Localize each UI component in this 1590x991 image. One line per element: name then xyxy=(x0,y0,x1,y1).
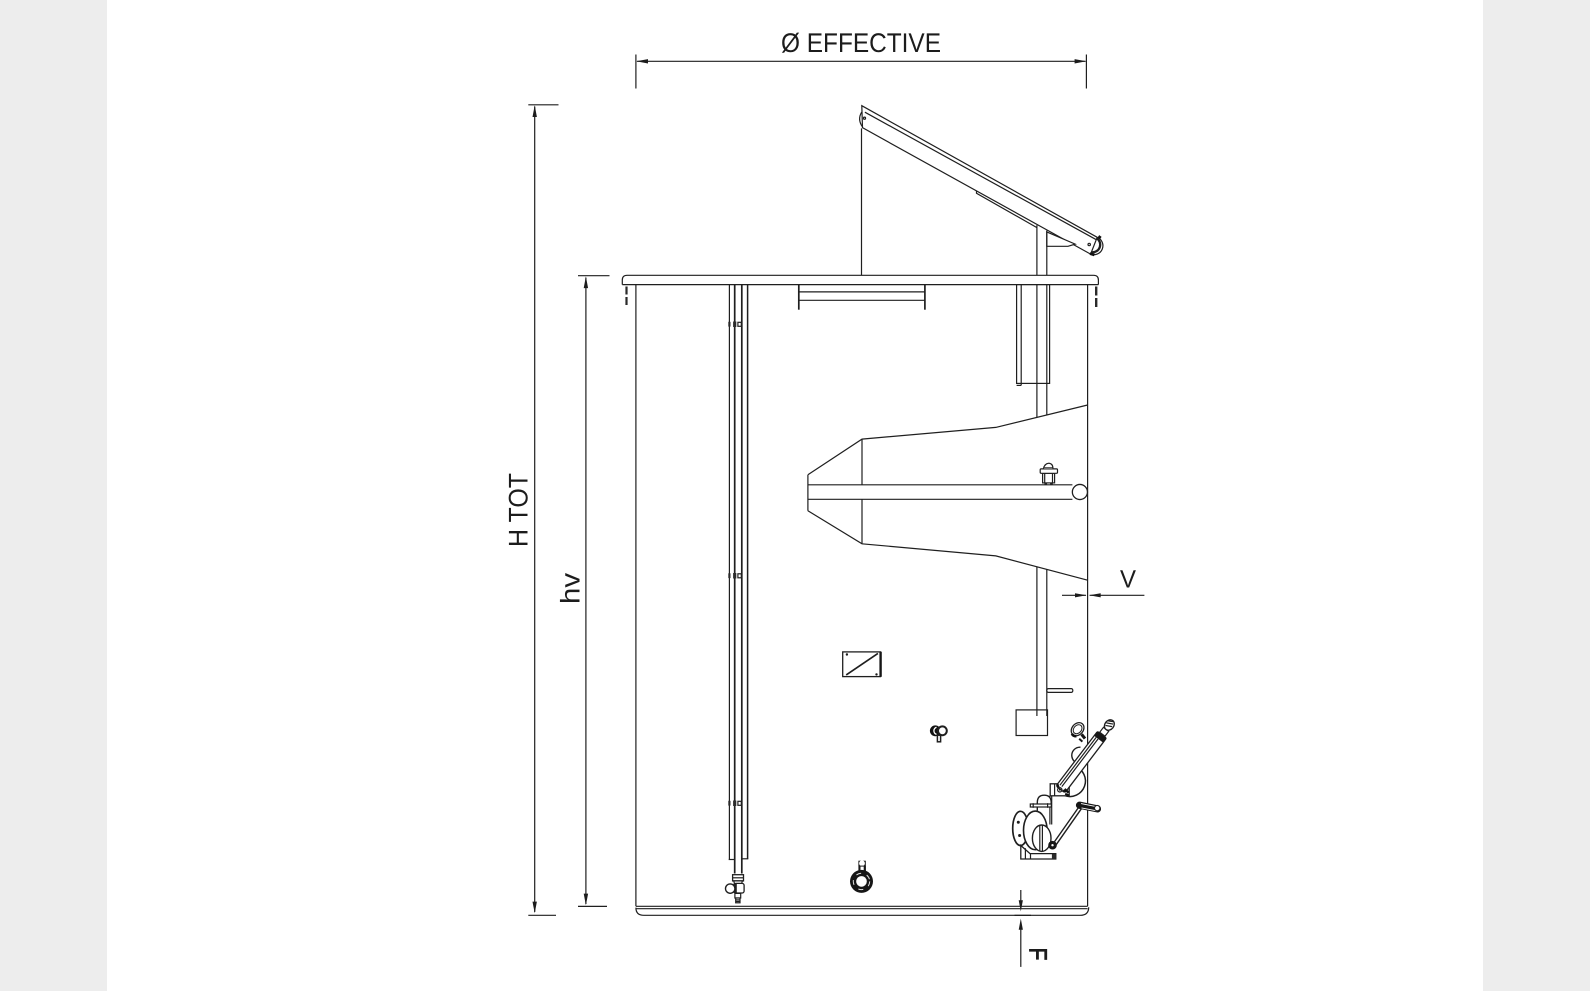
svg-text:V: V xyxy=(1120,566,1136,594)
svg-text:Ø EFFECTIVE: Ø EFFECTIVE xyxy=(781,28,941,58)
svg-text:hv: hv xyxy=(556,572,586,604)
svg-text:F: F xyxy=(1023,948,1051,961)
svg-text:H TOT: H TOT xyxy=(504,473,534,547)
